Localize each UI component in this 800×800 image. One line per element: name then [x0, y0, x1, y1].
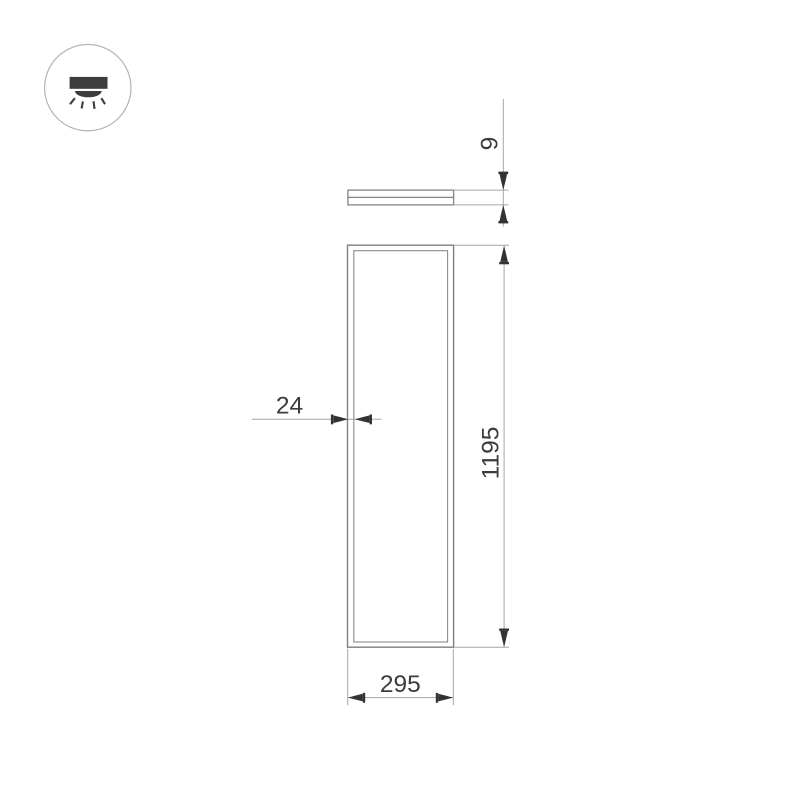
- svg-text:24: 24: [276, 392, 303, 419]
- svg-text:9: 9: [477, 137, 504, 151]
- svg-text:295: 295: [380, 671, 421, 698]
- svg-text:1195: 1195: [478, 427, 505, 480]
